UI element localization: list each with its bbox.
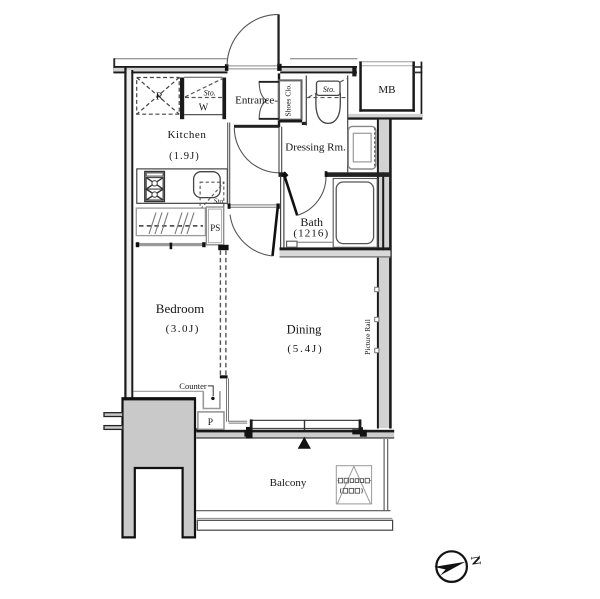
svg-text:Counter: Counter <box>179 381 207 391</box>
svg-text:Sto.: Sto. <box>323 85 335 94</box>
svg-text:R: R <box>156 92 163 103</box>
svg-text:(1.9J): (1.9J) <box>169 151 200 162</box>
svg-text:(1216): (1216) <box>293 227 329 239</box>
svg-text:P: P <box>208 418 213 428</box>
svg-text:Sto.: Sto. <box>214 197 226 206</box>
svg-text:Bedroom: Bedroom <box>156 301 204 316</box>
svg-text:PS: PS <box>210 223 220 233</box>
svg-text:Dressing Rm.: Dressing Rm. <box>285 141 346 153</box>
svg-text:Entrance-: Entrance- <box>235 94 278 106</box>
svg-text:Shoes Clo.: Shoes Clo. <box>284 84 293 117</box>
svg-text:Kitchen: Kitchen <box>167 129 206 141</box>
svg-text:(3.0J): (3.0J) <box>166 323 200 335</box>
svg-text:W: W <box>199 102 209 113</box>
svg-text:Dining: Dining <box>287 322 322 336</box>
svg-text:(5.4J): (5.4J) <box>287 343 323 355</box>
svg-text:MB: MB <box>378 84 395 96</box>
svg-text:Picture Rail: Picture Rail <box>363 319 372 355</box>
svg-text:Sto.: Sto. <box>204 89 216 98</box>
svg-text:Balcony: Balcony <box>270 477 307 489</box>
